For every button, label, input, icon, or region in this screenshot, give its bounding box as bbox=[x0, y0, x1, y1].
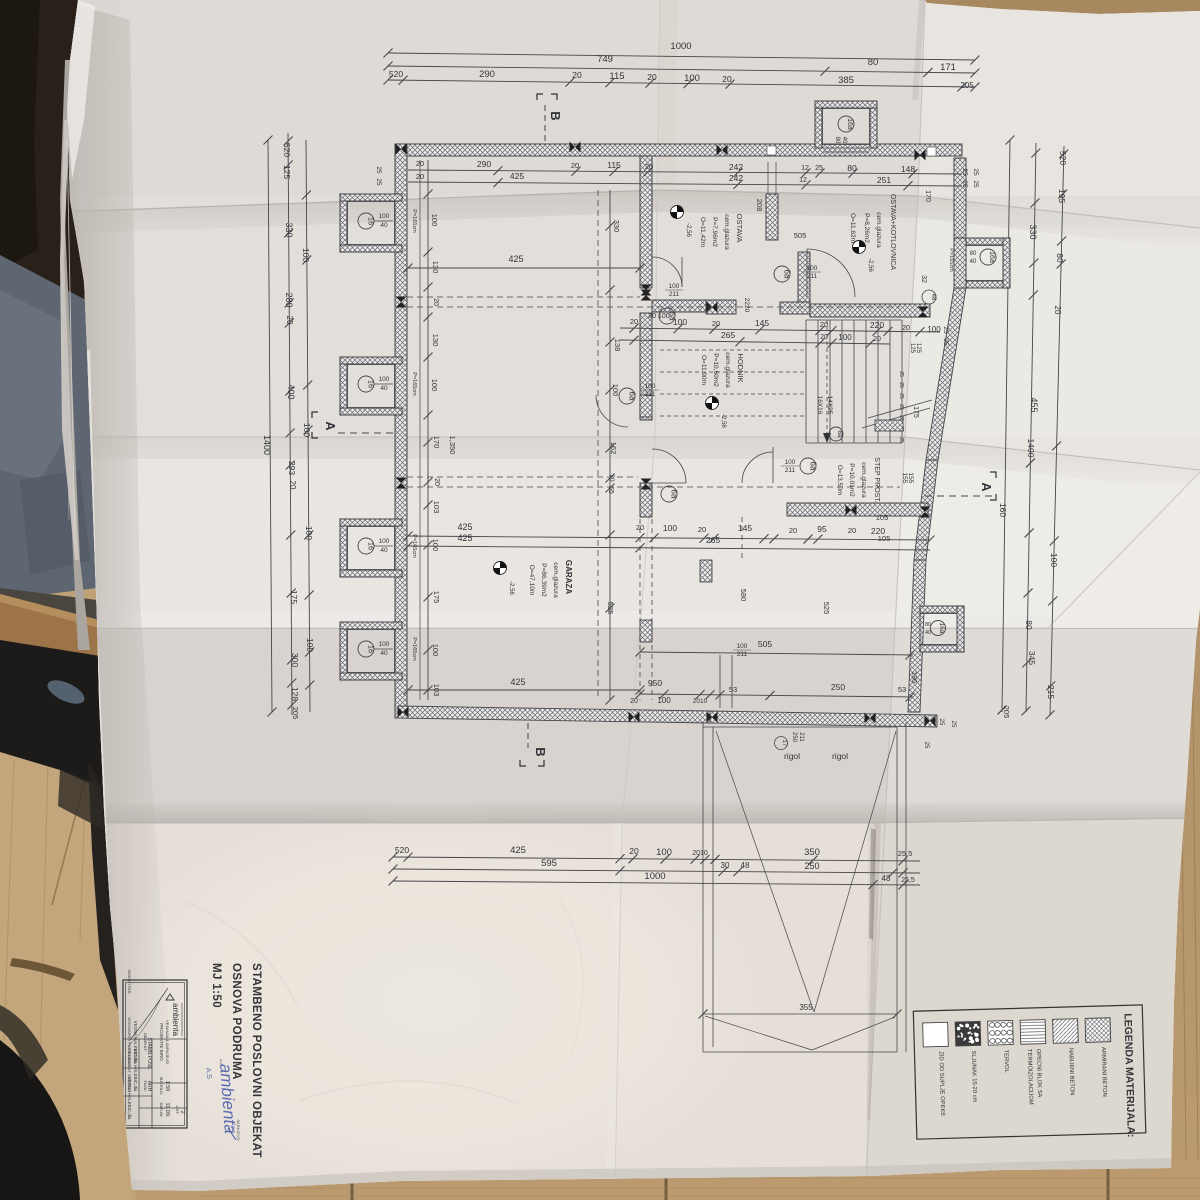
svg-text:32: 32 bbox=[920, 275, 927, 283]
svg-text:6a: 6a bbox=[809, 462, 818, 471]
svg-text:P=8,26m2: P=8,26m2 bbox=[863, 213, 870, 243]
svg-text:190: 190 bbox=[910, 671, 917, 683]
svg-text:100: 100 bbox=[838, 333, 852, 342]
svg-text:P=7,96m2: P=7,96m2 bbox=[711, 217, 718, 247]
svg-text:20: 20 bbox=[902, 325, 910, 332]
svg-text:80: 80 bbox=[834, 137, 840, 144]
svg-text:PROJEKTNI BIRO: PROJEKTNI BIRO bbox=[159, 1023, 164, 1061]
svg-text:P=10,01m2: P=10,01m2 bbox=[848, 463, 855, 497]
svg-text:211: 211 bbox=[645, 391, 656, 398]
svg-text:P=165cm: P=165cm bbox=[411, 372, 417, 396]
svg-text:20: 20 bbox=[433, 478, 440, 486]
svg-text:100: 100 bbox=[785, 459, 796, 466]
svg-text:B: B bbox=[548, 111, 563, 120]
svg-text:P=165cm: P=165cm bbox=[411, 637, 417, 661]
svg-text:290: 290 bbox=[477, 159, 491, 169]
svg-text:103: 103 bbox=[432, 501, 441, 514]
svg-text:GARAZA: GARAZA bbox=[564, 560, 573, 594]
svg-text:155: 155 bbox=[907, 473, 914, 484]
svg-text:100: 100 bbox=[927, 325, 941, 334]
svg-text:cem.glazura: cem.glazura bbox=[552, 562, 559, 598]
svg-text:520: 520 bbox=[389, 69, 403, 79]
svg-text:100: 100 bbox=[301, 248, 311, 262]
svg-text:520: 520 bbox=[282, 143, 292, 157]
svg-text:128: 128 bbox=[290, 687, 300, 701]
svg-text:125: 125 bbox=[909, 343, 915, 354]
svg-text:80: 80 bbox=[847, 163, 857, 173]
svg-text:162: 162 bbox=[609, 442, 618, 455]
svg-text:VESANJA 4-SARAJEVO: VESANJA 4-SARAJEVO bbox=[165, 1020, 170, 1064]
svg-text:25,5: 25,5 bbox=[898, 849, 913, 858]
svg-text:A: A bbox=[979, 482, 994, 492]
svg-text:100: 100 bbox=[807, 265, 818, 272]
svg-text:40: 40 bbox=[841, 137, 847, 144]
svg-text:6a: 6a bbox=[628, 392, 637, 401]
svg-text:145: 145 bbox=[755, 318, 769, 328]
svg-text:A: A bbox=[323, 421, 338, 431]
svg-text:25,5: 25,5 bbox=[901, 877, 915, 884]
svg-text:425: 425 bbox=[510, 677, 525, 687]
svg-text:MJ 1:50: MJ 1:50 bbox=[210, 963, 222, 1008]
svg-text:100: 100 bbox=[305, 638, 315, 652]
svg-text:25: 25 bbox=[375, 166, 382, 174]
svg-text:16a: 16a bbox=[988, 251, 995, 263]
svg-text:100: 100 bbox=[737, 643, 748, 650]
svg-text:25: 25 bbox=[938, 719, 944, 726]
svg-text:20: 20 bbox=[629, 846, 639, 856]
svg-text:2010: 2010 bbox=[693, 698, 708, 705]
svg-text:2010: 2010 bbox=[692, 850, 708, 857]
svg-text:25: 25 bbox=[972, 168, 979, 176]
svg-text:25: 25 bbox=[942, 338, 949, 346]
svg-text:40: 40 bbox=[925, 630, 931, 636]
svg-text:P=165cm: P=165cm bbox=[948, 248, 954, 272]
svg-text:20: 20 bbox=[645, 162, 653, 171]
svg-text:100: 100 bbox=[657, 696, 671, 705]
svg-text:cem.glazura: cem.glazura bbox=[723, 214, 730, 250]
svg-text:350: 350 bbox=[804, 847, 820, 858]
svg-text:100: 100 bbox=[379, 641, 390, 648]
svg-text:40: 40 bbox=[380, 547, 388, 554]
svg-text:SARAJEVO: SARAJEVO bbox=[236, 1119, 241, 1140]
svg-text:OSTAVA+KOTLOVNICA: OSTAVA+KOTLOVNICA bbox=[889, 194, 896, 270]
svg-text:250: 250 bbox=[791, 732, 797, 743]
svg-text:STAMBENO POSLOVNI OBJEKAT: STAMBENO POSLOVNI OBJEKAT bbox=[250, 963, 262, 1158]
svg-text:115: 115 bbox=[607, 160, 621, 170]
svg-text:520: 520 bbox=[395, 845, 409, 855]
svg-text:520: 520 bbox=[1058, 151, 1068, 165]
svg-text:rigol: rigol bbox=[784, 751, 800, 761]
svg-text:-2,56: -2,56 bbox=[685, 223, 691, 237]
svg-text:cem.glazura: cem.glazura bbox=[860, 462, 867, 498]
svg-text:505: 505 bbox=[758, 639, 772, 649]
svg-text:OSNOVA PODRUMA: OSNOVA PODRUMA bbox=[230, 963, 242, 1080]
svg-text:250: 250 bbox=[831, 682, 845, 692]
svg-text:171: 171 bbox=[940, 62, 956, 73]
svg-text:25: 25 bbox=[950, 721, 956, 728]
svg-text:20: 20 bbox=[636, 523, 644, 532]
svg-text:20: 20 bbox=[630, 317, 638, 326]
svg-text:1400: 1400 bbox=[1026, 439, 1036, 458]
svg-text:525: 525 bbox=[606, 602, 615, 615]
svg-text:385: 385 bbox=[838, 75, 854, 86]
svg-text:HODNIK: HODNIK bbox=[736, 353, 745, 382]
svg-text:425: 425 bbox=[510, 171, 524, 181]
svg-text:14X25: 14X25 bbox=[826, 396, 833, 415]
svg-text:MJERILO:: MJERILO: bbox=[159, 1077, 164, 1095]
svg-text:265: 265 bbox=[721, 330, 735, 340]
svg-text:STAMB.POSL.: STAMB.POSL. bbox=[146, 1038, 152, 1071]
svg-text:11.09.: 11.09. bbox=[164, 1103, 170, 1118]
svg-text:O=11,90m: O=11,90m bbox=[700, 355, 707, 385]
svg-text:25: 25 bbox=[898, 404, 904, 410]
svg-text:6a: 6a bbox=[783, 270, 792, 279]
svg-text:330: 330 bbox=[284, 222, 294, 237]
svg-text:425: 425 bbox=[457, 522, 472, 532]
svg-text:175: 175 bbox=[912, 406, 919, 418]
svg-text:6a: 6a bbox=[836, 430, 843, 438]
svg-text:20 100: 20 100 bbox=[648, 313, 670, 320]
svg-text:12: 12 bbox=[799, 177, 807, 184]
svg-text:40: 40 bbox=[970, 259, 977, 265]
svg-text:20: 20 bbox=[820, 320, 828, 329]
svg-text:20: 20 bbox=[285, 316, 294, 325]
svg-text:80: 80 bbox=[1055, 253, 1065, 263]
svg-text:400: 400 bbox=[286, 384, 296, 399]
svg-text:P=165cm: P=165cm bbox=[411, 209, 417, 233]
svg-text:ARH: ARH bbox=[146, 1081, 152, 1092]
svg-text:242: 242 bbox=[729, 162, 743, 172]
svg-text:175: 175 bbox=[289, 590, 299, 604]
svg-text:80: 80 bbox=[868, 57, 879, 68]
svg-text:16X16: 16X16 bbox=[816, 396, 823, 415]
svg-text:100: 100 bbox=[611, 384, 620, 397]
svg-text:20: 20 bbox=[647, 72, 657, 82]
svg-text:ambienta: ambienta bbox=[171, 1003, 180, 1036]
svg-text:155: 155 bbox=[901, 473, 908, 484]
svg-text:20: 20 bbox=[722, 74, 732, 84]
svg-text:O=11,42m: O=11,42m bbox=[699, 217, 706, 247]
svg-text:425: 425 bbox=[510, 845, 526, 856]
svg-text:25: 25 bbox=[961, 168, 968, 176]
svg-text:DATUM:: DATUM: bbox=[159, 1102, 164, 1117]
svg-text:80: 80 bbox=[970, 251, 977, 257]
svg-text:115: 115 bbox=[609, 71, 624, 82]
svg-text:205: 205 bbox=[960, 81, 974, 90]
svg-text:20: 20 bbox=[416, 159, 424, 168]
svg-text:251: 251 bbox=[877, 175, 891, 185]
svg-text:175: 175 bbox=[432, 591, 441, 604]
svg-text:48: 48 bbox=[882, 874, 891, 883]
svg-text:O=13,50m: O=13,50m bbox=[836, 465, 843, 496]
svg-text:17: 17 bbox=[781, 740, 787, 747]
svg-text:125: 125 bbox=[915, 343, 921, 354]
svg-text:2220: 2220 bbox=[743, 298, 750, 313]
svg-text:53: 53 bbox=[898, 685, 906, 694]
svg-text:130: 130 bbox=[431, 334, 440, 347]
svg-text:20: 20 bbox=[630, 698, 638, 705]
svg-text:1000: 1000 bbox=[670, 41, 691, 52]
svg-text:20: 20 bbox=[698, 525, 706, 534]
svg-text:130: 130 bbox=[431, 261, 440, 274]
svg-text:95: 95 bbox=[817, 524, 827, 534]
svg-text:20: 20 bbox=[712, 319, 720, 328]
svg-text:20: 20 bbox=[848, 526, 856, 535]
svg-text:VESNA HALEBIC,dia: VESNA HALEBIC,dia bbox=[133, 1049, 138, 1092]
svg-text:300: 300 bbox=[290, 653, 300, 667]
svg-text:950: 950 bbox=[648, 678, 662, 688]
svg-text:100: 100 bbox=[304, 526, 314, 540]
svg-text:25: 25 bbox=[923, 742, 929, 749]
svg-text:525: 525 bbox=[822, 602, 831, 615]
svg-text:25: 25 bbox=[898, 393, 904, 399]
svg-text:25: 25 bbox=[972, 180, 979, 188]
svg-text:25: 25 bbox=[898, 437, 904, 443]
svg-text:345: 345 bbox=[1027, 651, 1037, 665]
svg-text:211: 211 bbox=[669, 291, 680, 298]
svg-text:cem.glazura: cem.glazura bbox=[875, 212, 882, 248]
svg-text:425: 425 bbox=[457, 533, 472, 543]
svg-text:1,350: 1,350 bbox=[448, 436, 457, 455]
svg-text:30: 30 bbox=[721, 861, 730, 870]
svg-text:16a: 16a bbox=[846, 118, 853, 130]
svg-text:100: 100 bbox=[431, 644, 440, 657]
svg-text:20: 20 bbox=[873, 336, 881, 343]
svg-text:OSTAVA: OSTAVA bbox=[735, 214, 744, 243]
svg-text:-2,56: -2,56 bbox=[867, 258, 873, 272]
svg-text:20: 20 bbox=[432, 298, 439, 306]
svg-text:P=10,60m2: P=10,60m2 bbox=[712, 353, 719, 387]
svg-text:205: 205 bbox=[291, 707, 300, 720]
svg-text:1000: 1000 bbox=[644, 871, 665, 882]
svg-text:138: 138 bbox=[613, 339, 622, 352]
svg-text:250: 250 bbox=[804, 861, 819, 871]
svg-text:6a: 6a bbox=[670, 490, 679, 499]
svg-text:211: 211 bbox=[737, 651, 748, 658]
svg-text:1:50: 1:50 bbox=[164, 1081, 170, 1092]
svg-text:100: 100 bbox=[656, 847, 672, 858]
svg-text:20: 20 bbox=[608, 474, 615, 482]
svg-text:505: 505 bbox=[794, 231, 807, 240]
svg-text:VESNA HALEBIC,dia: VESNA HALEBIC,dia bbox=[127, 1077, 132, 1120]
svg-text:100: 100 bbox=[684, 73, 700, 84]
svg-text:P=86,39m2: P=86,39m2 bbox=[540, 563, 547, 597]
svg-text:100: 100 bbox=[302, 423, 312, 437]
svg-text:25: 25 bbox=[942, 326, 949, 334]
svg-text:455: 455 bbox=[1029, 397, 1039, 412]
svg-text:1400: 1400 bbox=[262, 435, 272, 455]
svg-text:100: 100 bbox=[430, 379, 439, 392]
svg-text:100: 100 bbox=[669, 283, 680, 290]
svg-text:265: 265 bbox=[706, 535, 720, 545]
svg-text:195: 195 bbox=[1057, 189, 1067, 203]
svg-text:211: 211 bbox=[785, 467, 796, 474]
svg-text:O=11,62m: O=11,62m bbox=[849, 213, 856, 243]
svg-text:25: 25 bbox=[961, 180, 968, 188]
svg-text:TERVOL: TERVOL bbox=[1002, 1050, 1009, 1074]
svg-text:80: 80 bbox=[1024, 620, 1034, 630]
svg-text:580: 580 bbox=[739, 589, 748, 602]
svg-text:20: 20 bbox=[571, 161, 579, 170]
svg-text:125: 125 bbox=[282, 165, 292, 179]
svg-text:100: 100 bbox=[431, 539, 440, 552]
svg-text:290: 290 bbox=[479, 69, 495, 80]
svg-text:B: B bbox=[533, 747, 548, 756]
svg-text:749: 749 bbox=[597, 54, 613, 65]
svg-text:205: 205 bbox=[1002, 706, 1011, 719]
svg-text:330: 330 bbox=[1028, 224, 1038, 239]
svg-text:330: 330 bbox=[612, 220, 621, 233]
svg-text:48: 48 bbox=[930, 294, 936, 301]
svg-text:100: 100 bbox=[430, 214, 439, 227]
svg-text:-2,56: -2,56 bbox=[508, 581, 514, 595]
svg-text:53: 53 bbox=[729, 685, 737, 694]
svg-text:595: 595 bbox=[541, 858, 557, 869]
svg-text:170: 170 bbox=[432, 436, 441, 449]
svg-text:100: 100 bbox=[673, 317, 687, 327]
svg-text:100: 100 bbox=[663, 523, 677, 533]
svg-text:-2,56: -2,56 bbox=[720, 414, 726, 428]
svg-text:242: 242 bbox=[729, 173, 743, 183]
svg-text:100: 100 bbox=[379, 213, 390, 220]
svg-text:145: 145 bbox=[738, 523, 752, 533]
svg-text:211: 211 bbox=[798, 732, 804, 742]
svg-text:105: 105 bbox=[876, 513, 889, 522]
svg-text:25: 25 bbox=[815, 165, 823, 172]
svg-text:48: 48 bbox=[741, 861, 750, 870]
svg-text:20: 20 bbox=[1053, 306, 1062, 315]
svg-text:40: 40 bbox=[380, 650, 388, 657]
svg-text:rigol: rigol bbox=[832, 751, 848, 761]
svg-text:O=47,10m: O=47,10m bbox=[528, 565, 535, 596]
svg-text:INVESTITOR:: INVESTITOR: bbox=[127, 969, 132, 994]
svg-text:100: 100 bbox=[645, 383, 656, 390]
svg-text:220: 220 bbox=[870, 320, 884, 330]
svg-text:STEP PROST.: STEP PROST. bbox=[873, 457, 880, 502]
svg-text:16a: 16a bbox=[938, 623, 945, 634]
svg-text:80: 80 bbox=[925, 622, 931, 628]
svg-text:20: 20 bbox=[820, 334, 828, 341]
svg-text:215: 215 bbox=[1046, 685, 1056, 699]
svg-text:170: 170 bbox=[924, 190, 931, 202]
svg-text:40: 40 bbox=[380, 385, 388, 392]
svg-text:2: 2 bbox=[179, 1110, 185, 1113]
svg-text:12: 12 bbox=[801, 165, 809, 172]
svg-text:105: 105 bbox=[878, 534, 891, 543]
svg-text:20: 20 bbox=[416, 172, 424, 181]
svg-text:cem.glazura: cem.glazura bbox=[724, 352, 731, 388]
svg-text:20: 20 bbox=[572, 70, 582, 80]
svg-text:425: 425 bbox=[508, 254, 523, 264]
svg-text:208: 208 bbox=[755, 199, 764, 212]
svg-text:100: 100 bbox=[1049, 553, 1059, 567]
svg-text:160: 160 bbox=[998, 503, 1008, 517]
svg-text:25: 25 bbox=[375, 178, 382, 186]
svg-text:293: 293 bbox=[287, 461, 297, 475]
svg-text:20: 20 bbox=[789, 526, 797, 535]
svg-text:148: 148 bbox=[901, 164, 915, 174]
svg-text:100: 100 bbox=[379, 538, 390, 545]
svg-text:20: 20 bbox=[288, 481, 297, 490]
svg-text:211: 211 bbox=[807, 273, 818, 280]
svg-text:40: 40 bbox=[380, 222, 388, 229]
svg-text:25: 25 bbox=[898, 382, 904, 388]
svg-text:100: 100 bbox=[379, 376, 390, 383]
svg-text:25: 25 bbox=[898, 371, 904, 377]
svg-text:280: 280 bbox=[284, 292, 294, 307]
